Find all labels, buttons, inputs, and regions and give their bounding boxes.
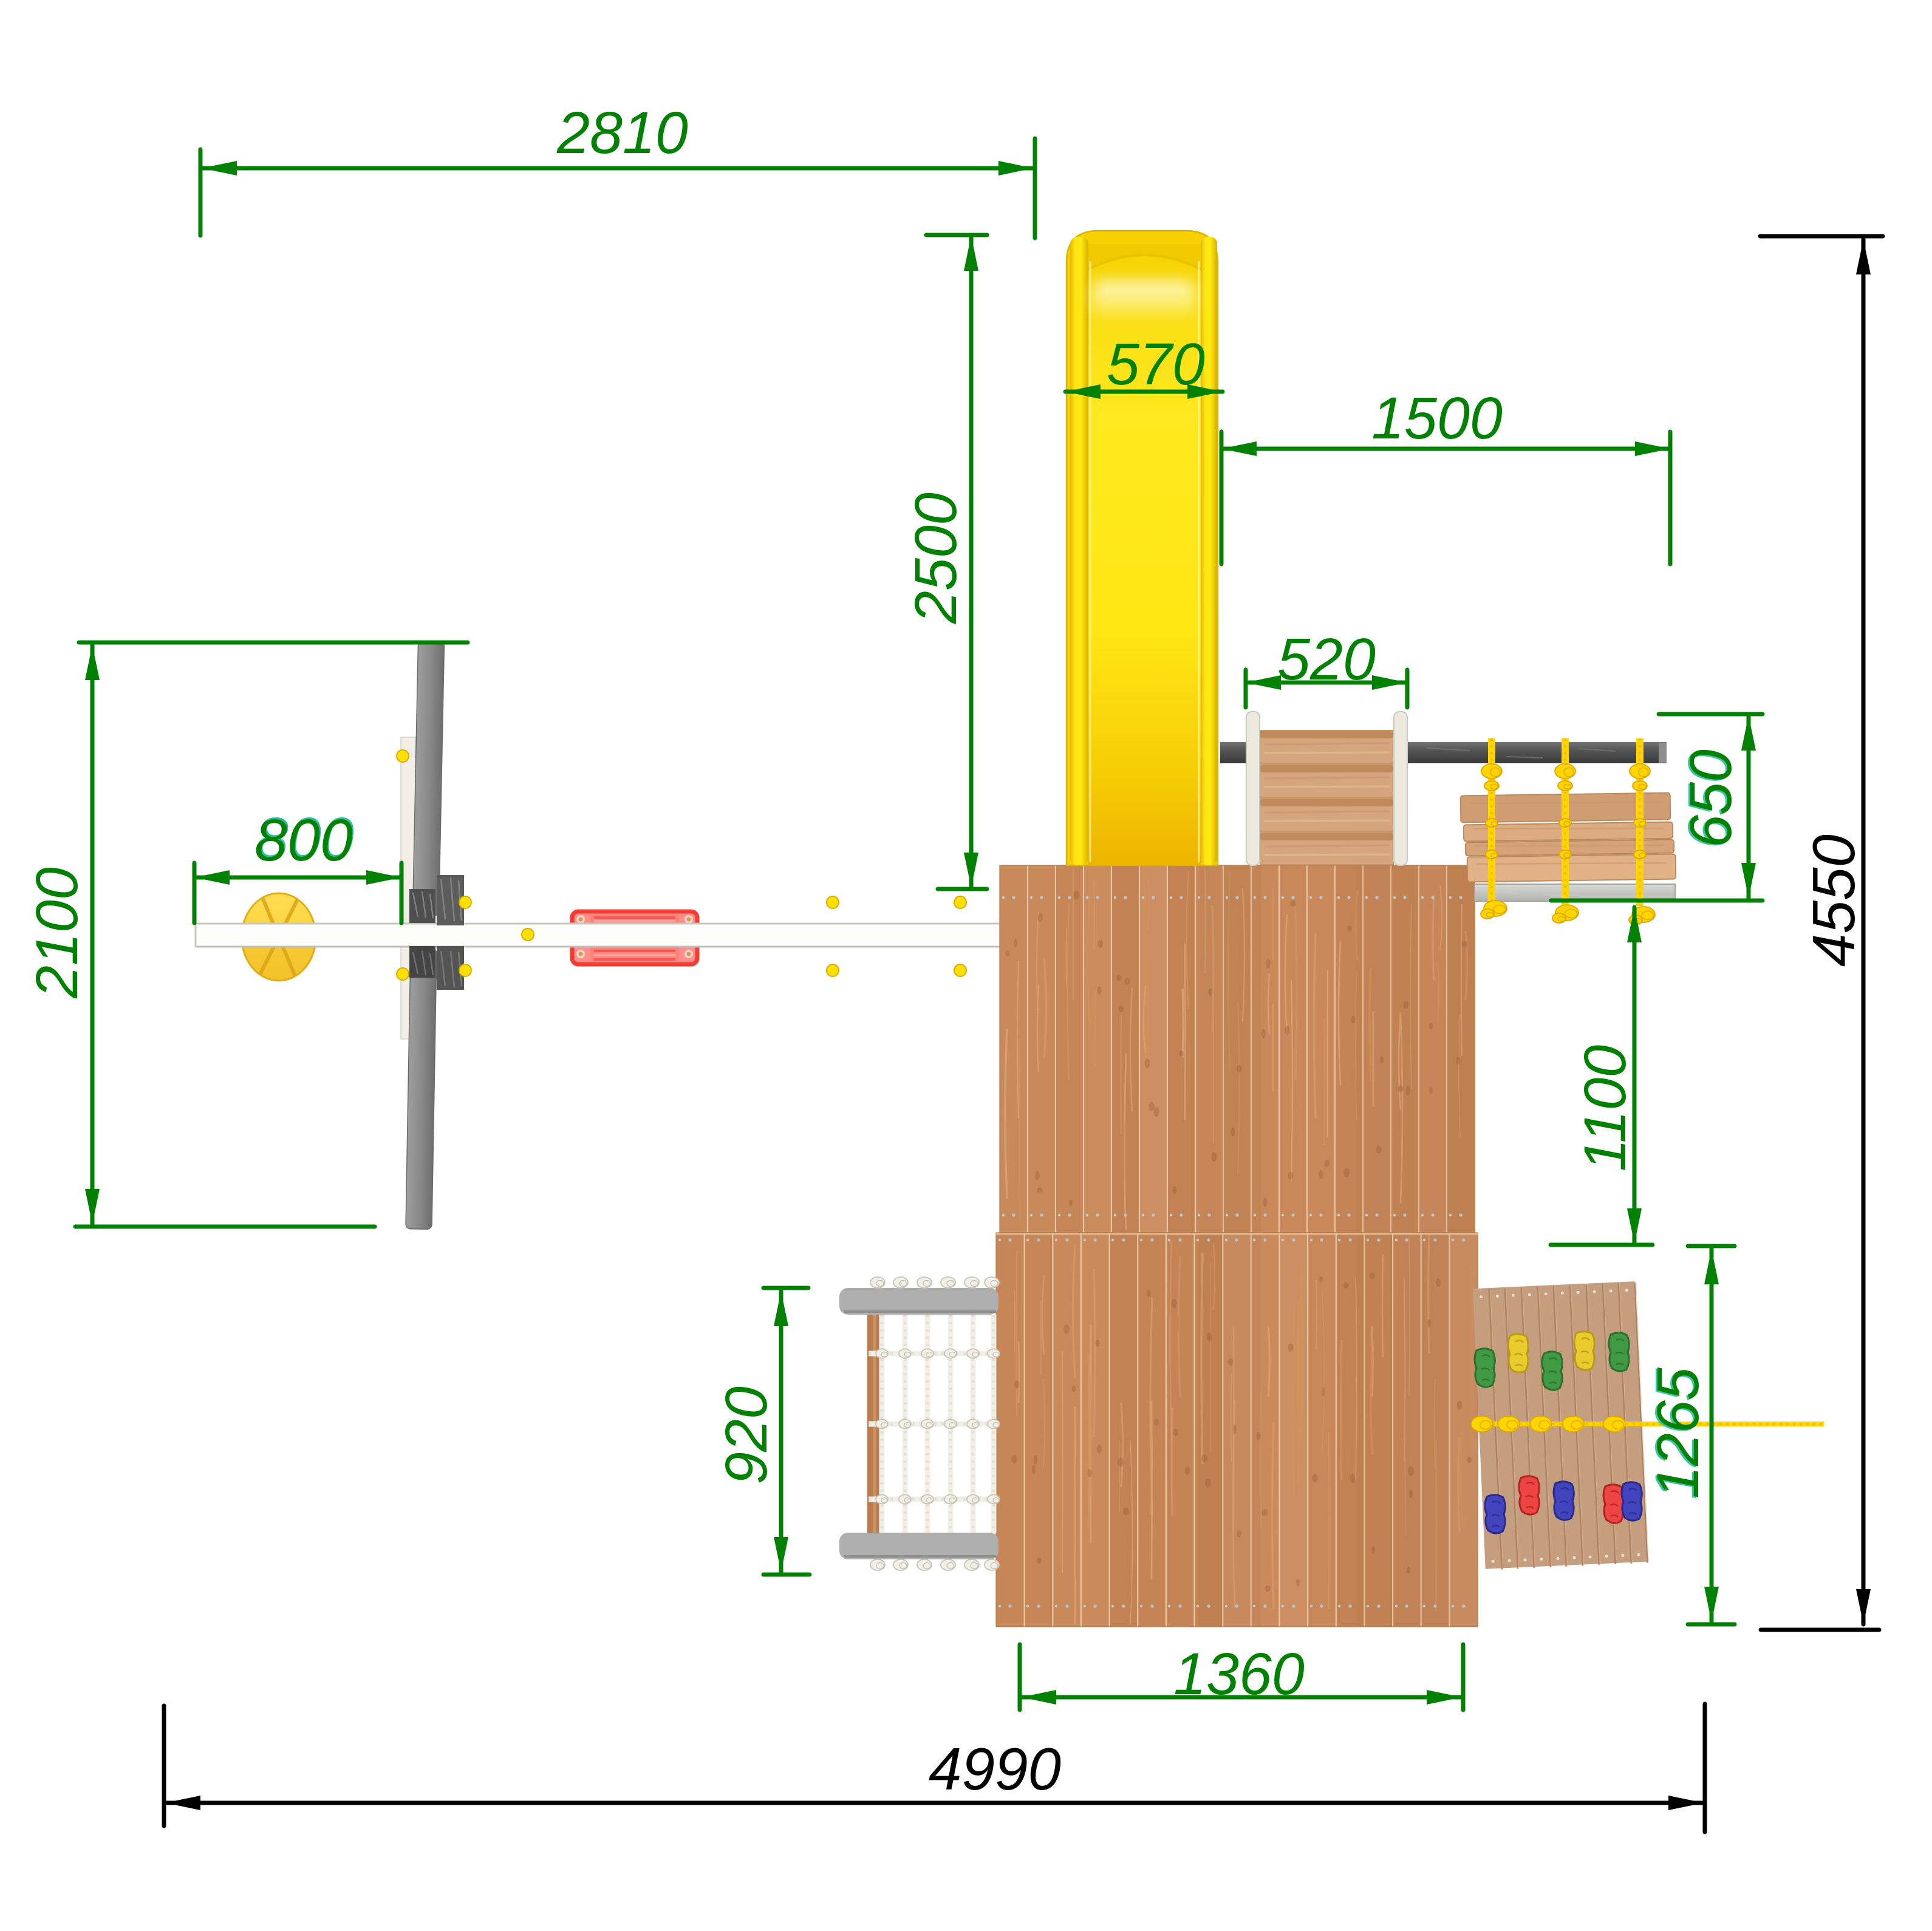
svg-text:1100: 1100 [1572, 1045, 1638, 1172]
svg-text:920: 920 [713, 1386, 779, 1485]
svg-text:650: 650 [1678, 749, 1744, 848]
svg-text:4550: 4550 [1800, 834, 1867, 967]
svg-text:570: 570 [1107, 331, 1205, 397]
svg-text:4990: 4990 [929, 1735, 1061, 1802]
svg-text:2810: 2810 [556, 100, 688, 166]
svg-text:1265: 1265 [1645, 1367, 1711, 1499]
svg-text:1360: 1360 [1173, 1641, 1305, 1707]
svg-text:520: 520 [1277, 626, 1376, 692]
svg-text:2100: 2100 [24, 867, 90, 999]
svg-text:800: 800 [254, 807, 353, 873]
svg-text:1500: 1500 [1371, 385, 1503, 451]
svg-text:2500: 2500 [903, 492, 969, 624]
